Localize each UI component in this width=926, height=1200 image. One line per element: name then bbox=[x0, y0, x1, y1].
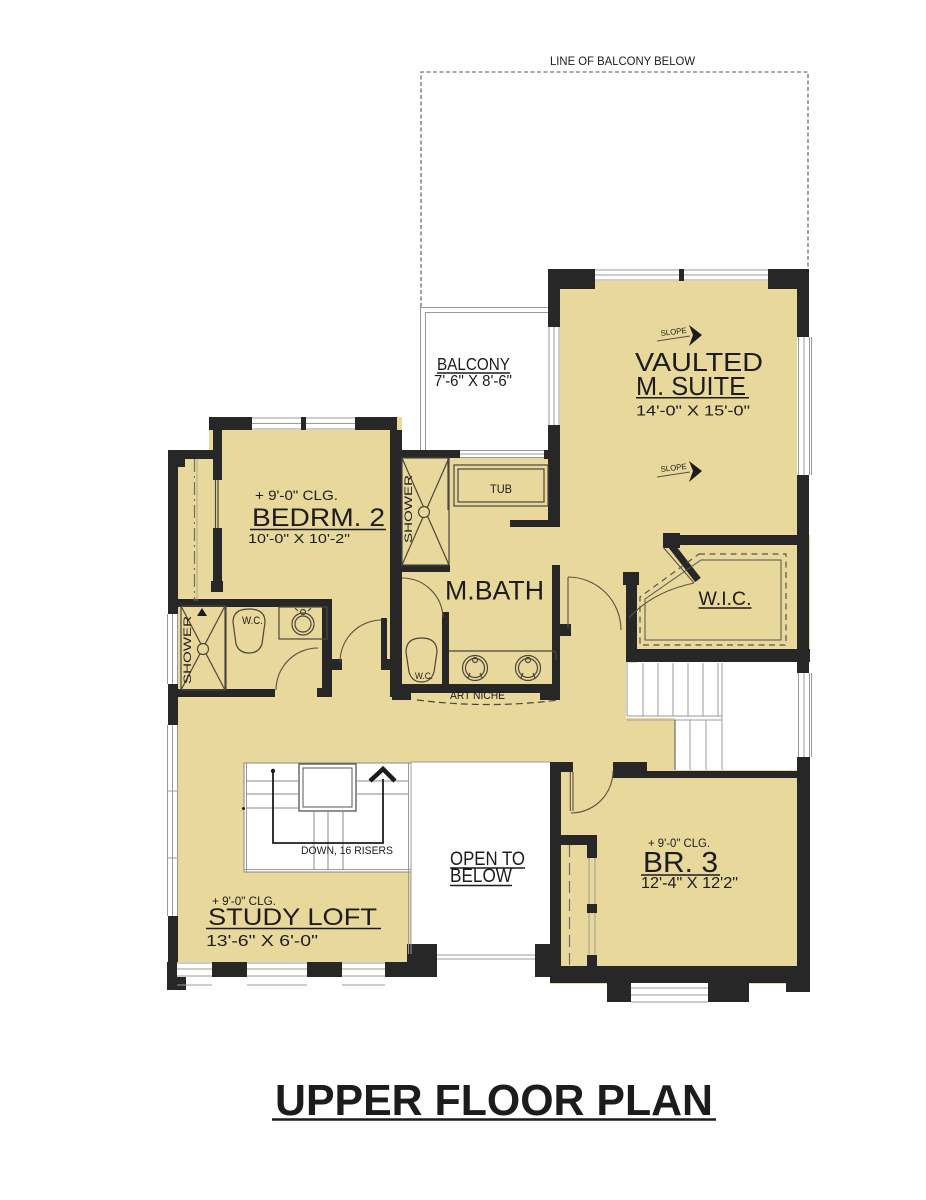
svg-text:13'-6" X 6'-0": 13'-6" X 6'-0" bbox=[206, 933, 318, 950]
svg-text:14'-0" X 15'-0": 14'-0" X 15'-0" bbox=[636, 403, 750, 420]
svg-text:W.C.: W.C. bbox=[242, 615, 263, 627]
svg-text:7'-6" X 8'-6": 7'-6" X 8'-6" bbox=[434, 373, 512, 390]
svg-text:ART NICHE: ART NICHE bbox=[450, 690, 505, 702]
svg-text:M. SUITE: M. SUITE bbox=[636, 371, 746, 401]
svg-text:UPPER FLOOR PLAN: UPPER FLOOR PLAN bbox=[275, 1076, 713, 1125]
svg-text:SHOWER: SHOWER bbox=[403, 475, 415, 543]
svg-text:W.C.: W.C. bbox=[415, 671, 433, 681]
svg-text:M.BATH: M.BATH bbox=[445, 576, 544, 606]
svg-text:BELOW: BELOW bbox=[450, 866, 512, 887]
svg-text:BEDRM. 2: BEDRM. 2 bbox=[252, 504, 385, 532]
svg-text:12'-4" X 12'2": 12'-4" X 12'2" bbox=[641, 875, 738, 892]
svg-text:BALCONY: BALCONY bbox=[437, 354, 510, 374]
svg-text:TUB: TUB bbox=[490, 482, 512, 496]
svg-text:W.I.C.: W.I.C. bbox=[699, 588, 752, 610]
svg-text:DOWN, 16 RISERS: DOWN, 16 RISERS bbox=[301, 845, 393, 857]
svg-text:+ 9'-0" CLG.: + 9'-0" CLG. bbox=[255, 487, 338, 503]
svg-text:SHOWER: SHOWER bbox=[182, 616, 194, 684]
svg-text:LINE OF BALCONY BELOW: LINE OF BALCONY BELOW bbox=[550, 56, 695, 68]
svg-text:STUDY LOFT: STUDY LOFT bbox=[208, 904, 377, 931]
svg-text:10'-0" X 10'-2": 10'-0" X 10'-2" bbox=[248, 531, 350, 546]
